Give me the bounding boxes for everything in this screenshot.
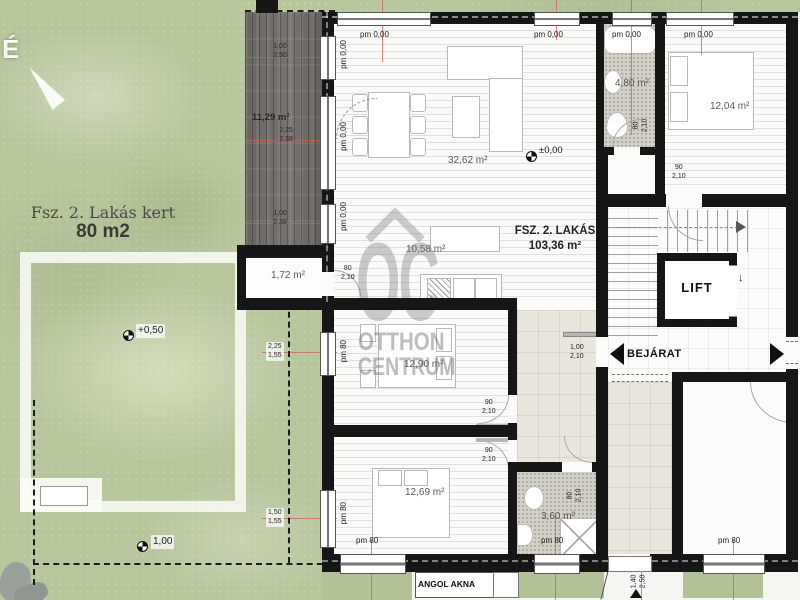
window xyxy=(337,12,431,26)
kitchen-area-label: 10,58 m² xyxy=(406,244,445,255)
window-level-label: pm 0,00 xyxy=(684,30,713,39)
planter-box xyxy=(40,486,88,506)
apartment-area: 103,36 m² xyxy=(500,240,610,252)
level-marker-icon xyxy=(137,541,148,552)
boundary-level-label: 1,00 xyxy=(151,535,174,549)
window-level-label: pm 0,00 xyxy=(339,40,348,69)
threshold-dashed xyxy=(612,374,668,375)
bedroom1-area-label: 12,90 m² xyxy=(404,359,443,370)
living-area-label: 32,62 m² xyxy=(448,155,487,166)
floor-plan-canvas: É Fsz. 2. Lakás kert 80 m2 +0,50 1,00 2,… xyxy=(0,0,800,600)
pillow xyxy=(670,56,688,86)
stair-direction-arrow-icon xyxy=(736,221,746,233)
window-level-label: pm 0,00 xyxy=(339,122,348,151)
window-sill-label: pm 80 xyxy=(718,536,740,545)
toilet xyxy=(524,486,544,510)
threshold-dashed xyxy=(612,381,668,382)
window-sill-label: pm 80 xyxy=(339,502,348,524)
window-sill-label: pm 80 xyxy=(339,340,348,362)
dim-garden-window-2: 1,501,55 xyxy=(266,508,284,527)
bottom-opening-frame xyxy=(608,556,652,572)
chair xyxy=(410,94,426,112)
window-level-label: pm 0,00 xyxy=(360,30,389,39)
shaft-label: ANGOL AKNA xyxy=(418,579,475,589)
dim-vestibule-door: 802,10 xyxy=(341,264,355,283)
property-line xyxy=(33,400,35,585)
window xyxy=(320,36,336,80)
kitchen-appliance xyxy=(475,278,497,300)
nightstand xyxy=(360,324,376,342)
coffee-table xyxy=(452,96,480,138)
pillow xyxy=(670,92,688,122)
dim-bedroom1-door: 902,10 xyxy=(482,398,496,417)
apartment-name: FSZ. 2. LAKÁS xyxy=(500,225,610,237)
terrace-area-label: 11,29 m² xyxy=(252,112,290,123)
garden-path xyxy=(20,252,246,512)
survey-marker-icon xyxy=(630,589,642,598)
lift-label: LIFT xyxy=(668,280,726,295)
window xyxy=(666,12,734,26)
dim-entry-door: 1,002,10 xyxy=(570,343,584,362)
dim-bedroom-right-door: 902,10 xyxy=(672,163,686,182)
dim-terrace-3: 1,002,38 xyxy=(262,209,298,228)
dim-bathroom-top-door: 802,10 xyxy=(632,110,651,140)
bedroom-right-area-label: 12,04 m² xyxy=(710,101,749,112)
sofa-chaise xyxy=(489,78,523,152)
bedroom2-area-label: 12,69 m² xyxy=(405,487,444,498)
shower xyxy=(560,518,599,558)
garden-level-label: +0,50 xyxy=(136,324,165,338)
opening-dashed xyxy=(786,363,798,364)
pillow xyxy=(378,470,402,486)
window-level-label: pm 0,00 xyxy=(612,30,641,39)
lift-down-arrow-icon: ↓ xyxy=(738,272,744,284)
sofa xyxy=(447,46,523,80)
entrance-label: BEJÁRAT xyxy=(627,348,682,360)
stove xyxy=(453,278,475,300)
shaft-box-secondary xyxy=(493,572,519,598)
pillow xyxy=(436,328,452,352)
kitchen-sink xyxy=(427,278,451,300)
window xyxy=(612,12,652,26)
window-sill-label: pm 80 xyxy=(541,536,563,545)
entry-door-leaf xyxy=(563,332,599,337)
garden-title: Fsz. 2. Lakás kert xyxy=(28,203,178,222)
window xyxy=(534,12,580,26)
window xyxy=(320,332,336,376)
stair-flight-left xyxy=(608,210,658,336)
vestibule-area-label: 1,72 m² xyxy=(271,270,305,281)
level-marker-icon xyxy=(123,330,134,341)
window xyxy=(340,554,406,574)
window-level-label: pm 0,00 xyxy=(534,30,563,39)
lift-door xyxy=(729,265,737,317)
chair xyxy=(410,116,426,134)
dim-bathroom-door: 802,10 xyxy=(566,480,585,510)
dim-terrace-2: 2,252,38 xyxy=(268,126,304,145)
window xyxy=(320,204,336,244)
window-level-label: pm 0,00 xyxy=(339,202,348,231)
bathroom-top-area-label: 4,80 m² xyxy=(615,78,649,89)
door-leaf xyxy=(476,438,508,442)
dim-terrace-1: 1,002,50 xyxy=(262,42,298,61)
neighbor-hall-floor xyxy=(608,382,672,554)
window xyxy=(703,554,765,574)
property-line xyxy=(33,563,333,565)
chair xyxy=(410,138,426,156)
entrance-arrow-right-icon xyxy=(770,343,784,365)
dim-bedroom2-door: 902,10 xyxy=(482,446,496,465)
sink xyxy=(517,524,533,546)
dim-garden-window-1: 2,251,55 xyxy=(266,342,284,361)
opening-dashed xyxy=(786,341,798,342)
entrance-arrow-left-icon xyxy=(610,343,624,365)
north-label: É xyxy=(2,34,19,65)
chair xyxy=(352,138,368,156)
nightstand xyxy=(360,370,376,388)
bathroom-area-label: 3,60 m² xyxy=(541,511,575,522)
garden-area: 80 m2 xyxy=(28,221,178,243)
window-sill-label: pm 80 xyxy=(356,536,378,545)
apartment-level-label: ±0,00 xyxy=(539,145,563,156)
pillow xyxy=(404,470,428,486)
property-line xyxy=(288,302,290,563)
window xyxy=(320,490,336,548)
terrace-door xyxy=(320,96,336,190)
window xyxy=(534,554,580,574)
